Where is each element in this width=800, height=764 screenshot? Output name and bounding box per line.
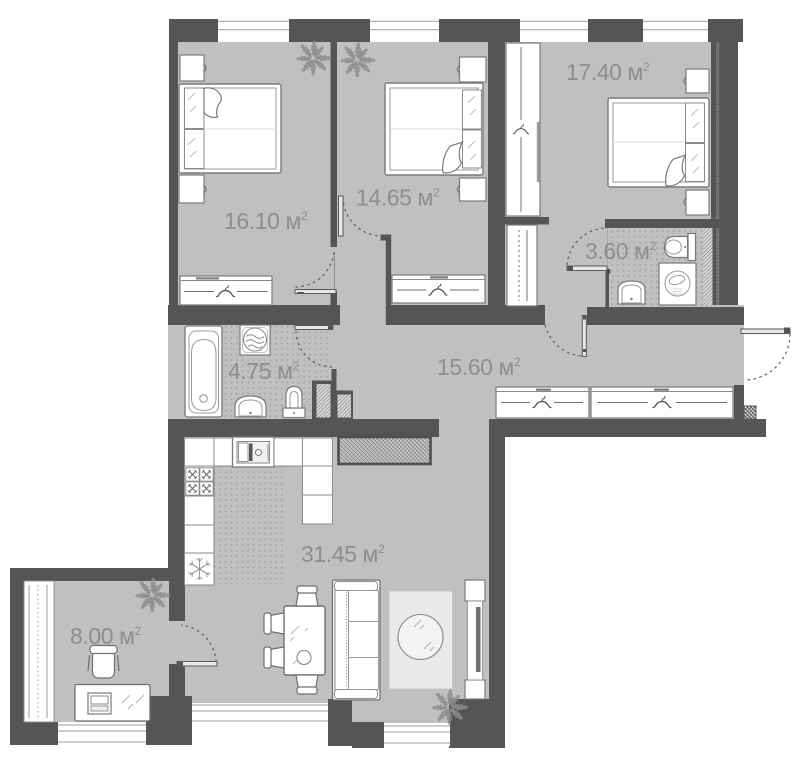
svg-text:17.40 м2: 17.40 м2: [566, 59, 650, 85]
svg-text:3.60 м2: 3.60 м2: [585, 238, 657, 264]
svg-text:31.45 м2: 31.45 м2: [301, 541, 385, 567]
svg-text:4.75 м2: 4.75 м2: [228, 358, 300, 384]
svg-text:14.65 м2: 14.65 м2: [356, 185, 440, 211]
svg-text:8.00 м2: 8.00 м2: [70, 623, 142, 649]
svg-text:15.60 м2: 15.60 м2: [437, 354, 521, 380]
svg-text:16.10 м2: 16.10 м2: [224, 208, 308, 234]
